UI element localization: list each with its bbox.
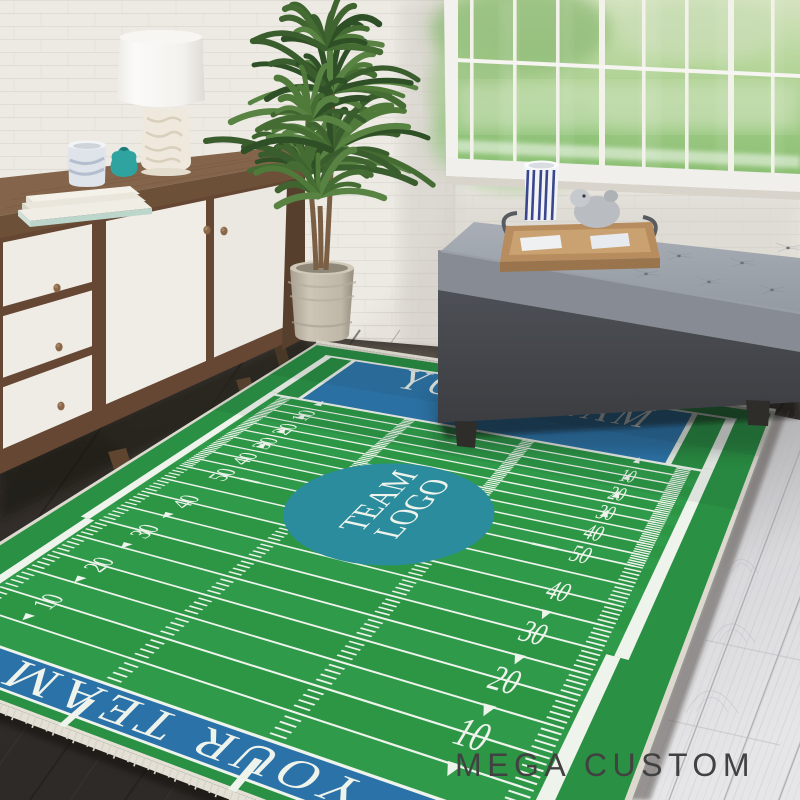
svg-text:MEGA CUSTOM: MEGA CUSTOM (455, 747, 755, 783)
